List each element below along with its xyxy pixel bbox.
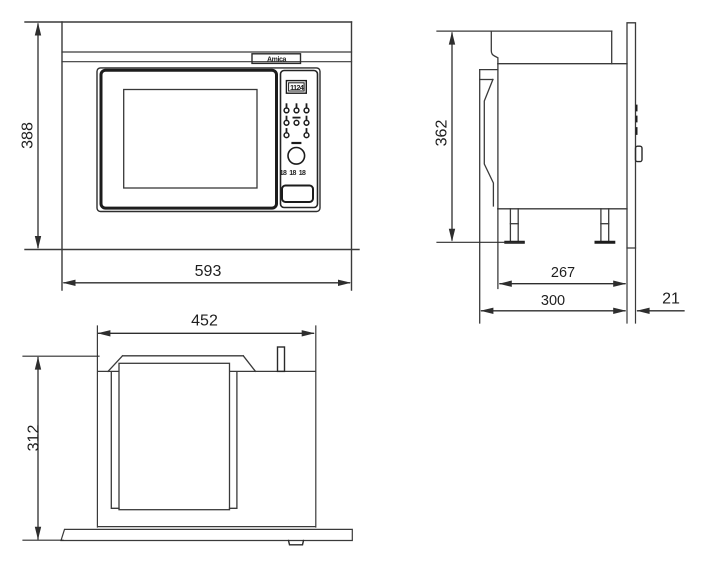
- svg-text:18: 18: [280, 170, 287, 177]
- svg-text:452: 452: [191, 313, 218, 330]
- svg-text:300: 300: [541, 293, 565, 309]
- svg-text:1124: 1124: [290, 83, 305, 92]
- svg-text:312: 312: [26, 425, 43, 452]
- svg-text:Amica: Amica: [267, 56, 287, 63]
- svg-text:21: 21: [662, 291, 680, 308]
- svg-text:362: 362: [434, 120, 451, 147]
- svg-text:18: 18: [289, 170, 296, 177]
- svg-text:18: 18: [299, 170, 306, 177]
- svg-text:593: 593: [195, 263, 222, 280]
- svg-text:388: 388: [20, 122, 37, 149]
- svg-text:267: 267: [551, 265, 575, 281]
